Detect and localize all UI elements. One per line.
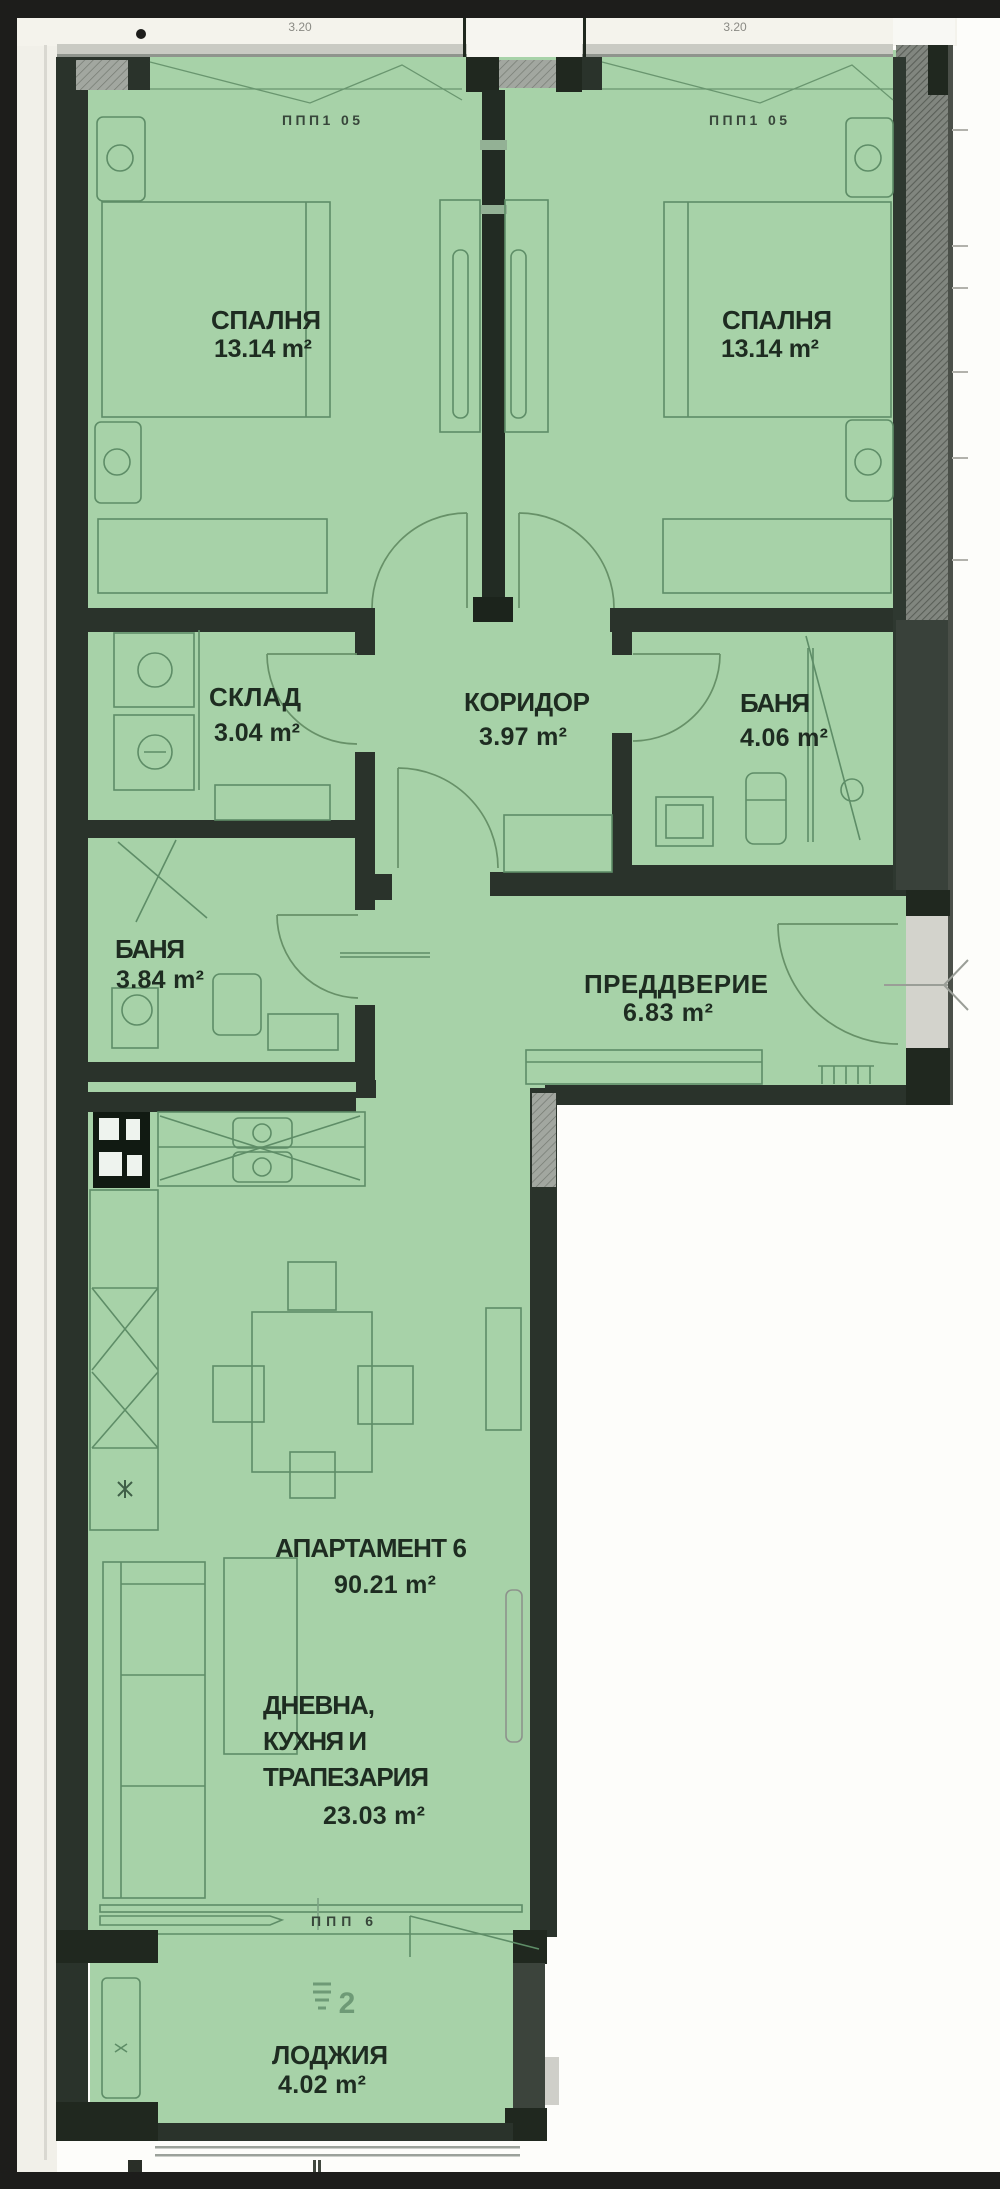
svg-text:АПАРТАМЕНТ 6: АПАРТАМЕНТ 6 [275,1533,467,1563]
svg-text:13.14 m²: 13.14 m² [721,335,819,363]
svg-text:КОРИДОР: КОРИДОР [464,687,590,717]
svg-text:3.97 m²: 3.97 m² [479,723,567,751]
svg-text:КУХНЯ И: КУХНЯ И [263,1726,367,1756]
svg-text:3.04 m²: 3.04 m² [214,719,300,747]
svg-text:4.02 m²: 4.02 m² [278,2071,366,2099]
svg-text:90.21 m²: 90.21 m² [334,1571,436,1599]
svg-text:СПАЛНЯ: СПАЛНЯ [722,305,832,335]
svg-text:ТРАПЕЗАРИЯ: ТРАПЕЗАРИЯ [263,1762,429,1792]
svg-text:БАНЯ: БАНЯ [740,688,810,718]
svg-text:23.03 m²: 23.03 m² [323,1802,425,1830]
svg-text:3.84 m²: 3.84 m² [116,966,204,994]
svg-text:ЛОДЖИЯ: ЛОДЖИЯ [272,2040,388,2070]
svg-text:СПАЛНЯ: СПАЛНЯ [211,305,321,335]
svg-text:3.20: 3.20 [288,20,312,34]
svg-text:6.83 m²: 6.83 m² [623,999,713,1027]
svg-text:3.20: 3.20 [723,20,747,34]
svg-text:4.06 m²: 4.06 m² [740,724,828,752]
svg-text:СКЛАД: СКЛАД [209,682,301,712]
svg-text:ПРЕДДВЕРИЕ: ПРЕДДВЕРИЕ [584,969,768,999]
svg-text:13.14 m²: 13.14 m² [214,335,312,363]
svg-text:ДНЕВНА,: ДНЕВНА, [263,1690,375,1720]
svg-text:БАНЯ: БАНЯ [115,934,185,964]
svg-text:2: 2 [339,1987,356,2020]
